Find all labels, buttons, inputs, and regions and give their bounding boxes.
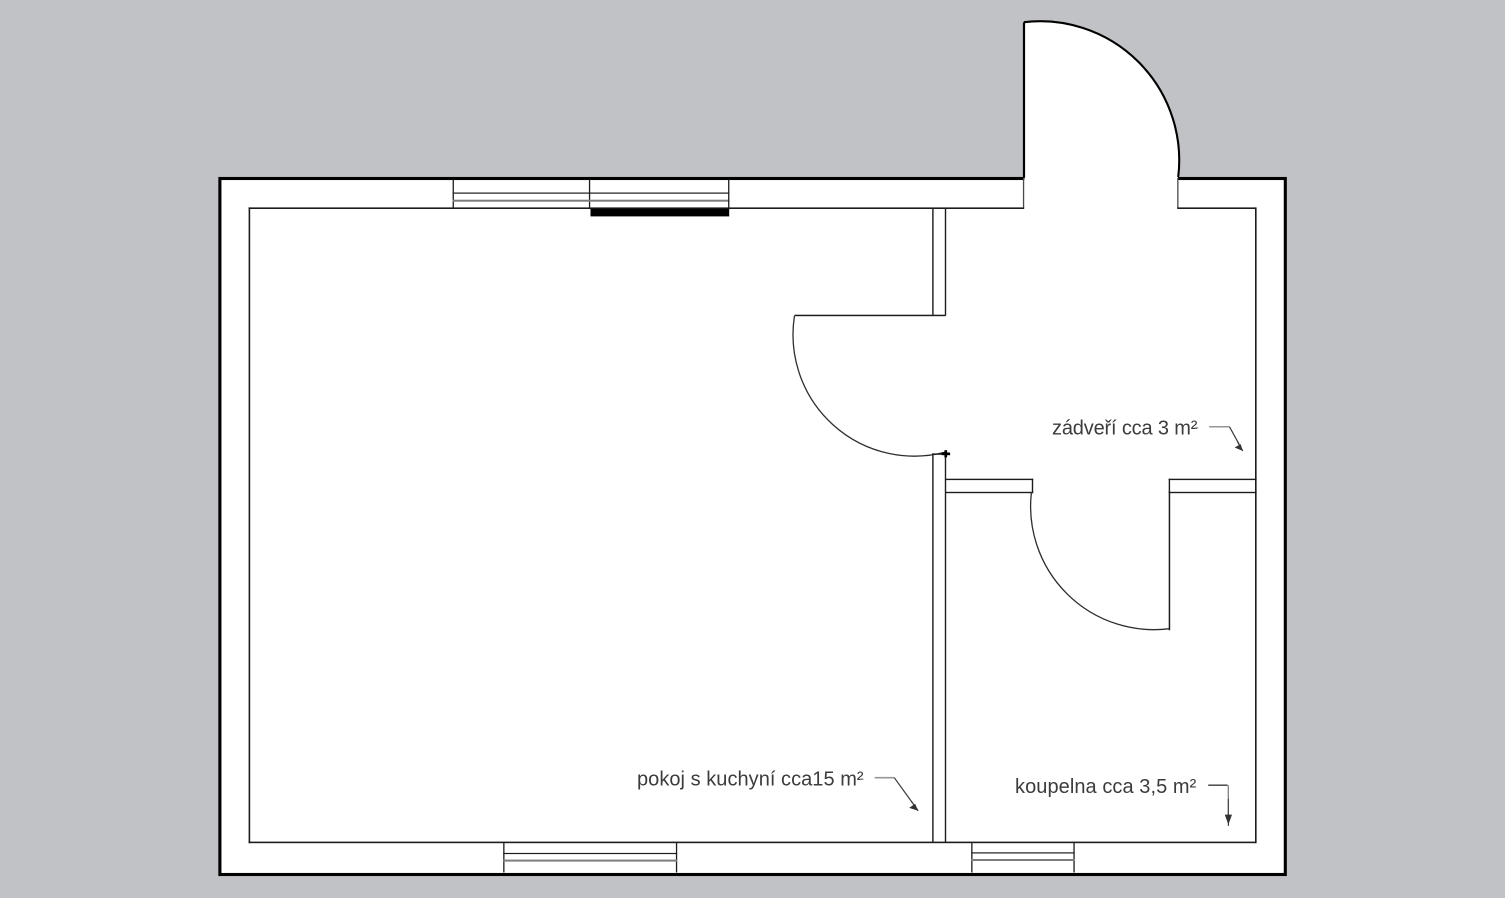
svg-text:pokoj s kuchyní cca15 m²: pokoj s kuchyní cca15 m²	[637, 769, 864, 791]
svg-text:zádveří cca 3 m²: zádveří cca 3 m²	[1052, 417, 1198, 439]
svg-text:koupelna cca 3,5 m²: koupelna cca 3,5 m²	[1015, 776, 1197, 798]
